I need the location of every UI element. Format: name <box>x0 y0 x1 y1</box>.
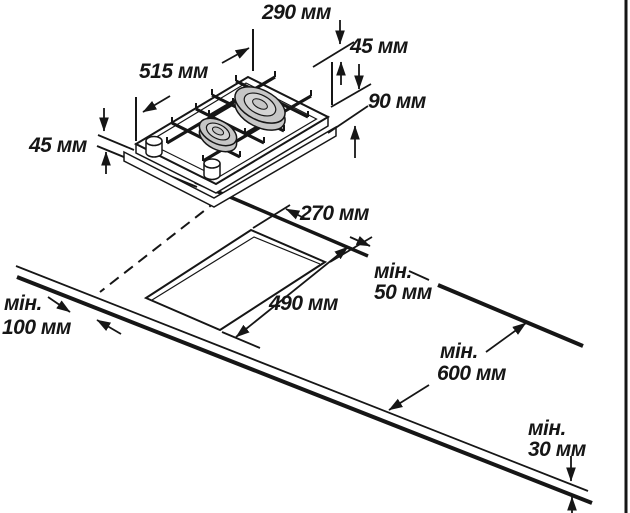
control-knob-right <box>204 159 220 180</box>
dim-hob-width-label: 290 мм <box>261 1 332 24</box>
dim-90-extension <box>328 106 368 133</box>
dim-min-below-label-2: 30 мм <box>528 438 587 461</box>
dim-600-arrow-down <box>389 385 429 410</box>
dim-45-extension-a <box>313 42 354 67</box>
gas-hob <box>124 71 336 207</box>
dim-burner-band-label: 90 мм <box>368 90 427 113</box>
dim-min-worktop-label-1: мін. <box>440 340 478 363</box>
worktop-back-edge-right <box>438 285 583 346</box>
dim-min-back-label-2: 50 мм <box>374 281 433 304</box>
dim-min-worktop-label-2: 600 мм <box>437 362 507 385</box>
diagram-canvas: 290 мм 45 мм 90 мм 515 мм 45 мм 270 мм м… <box>0 0 630 513</box>
dim-490-extension-bottom <box>222 332 260 348</box>
installation-diagram: 290 мм 45 мм 90 мм 515 мм 45 мм 270 мм м… <box>0 0 630 513</box>
dim-50-leader <box>409 271 429 280</box>
dim-side-height-label: 45 мм <box>28 134 88 157</box>
dim-back-offset-label: 45 мм <box>349 35 409 58</box>
dim-min-left-label-1: мін. <box>4 292 42 315</box>
dim-min-back-label-1: мін. <box>374 260 412 283</box>
dim-515-arrow <box>143 96 170 112</box>
dim-100-arrow-right <box>48 297 70 312</box>
control-knob-left <box>146 137 162 158</box>
dim-290-arrow <box>222 48 249 63</box>
worktop <box>16 135 592 503</box>
dim-100-arrow-left <box>97 320 121 334</box>
dim-cutout-width-label: 270 мм <box>299 202 370 225</box>
dim-hob-depth-label: 515 мм <box>139 60 209 83</box>
cutout-outline <box>146 230 325 330</box>
dim-min-left-label-2: 100 мм <box>2 316 72 339</box>
dim-min-below-label-1: мін. <box>528 417 566 440</box>
dim-45-extension-b <box>331 84 371 107</box>
dim-600-arrow-up <box>486 323 526 352</box>
